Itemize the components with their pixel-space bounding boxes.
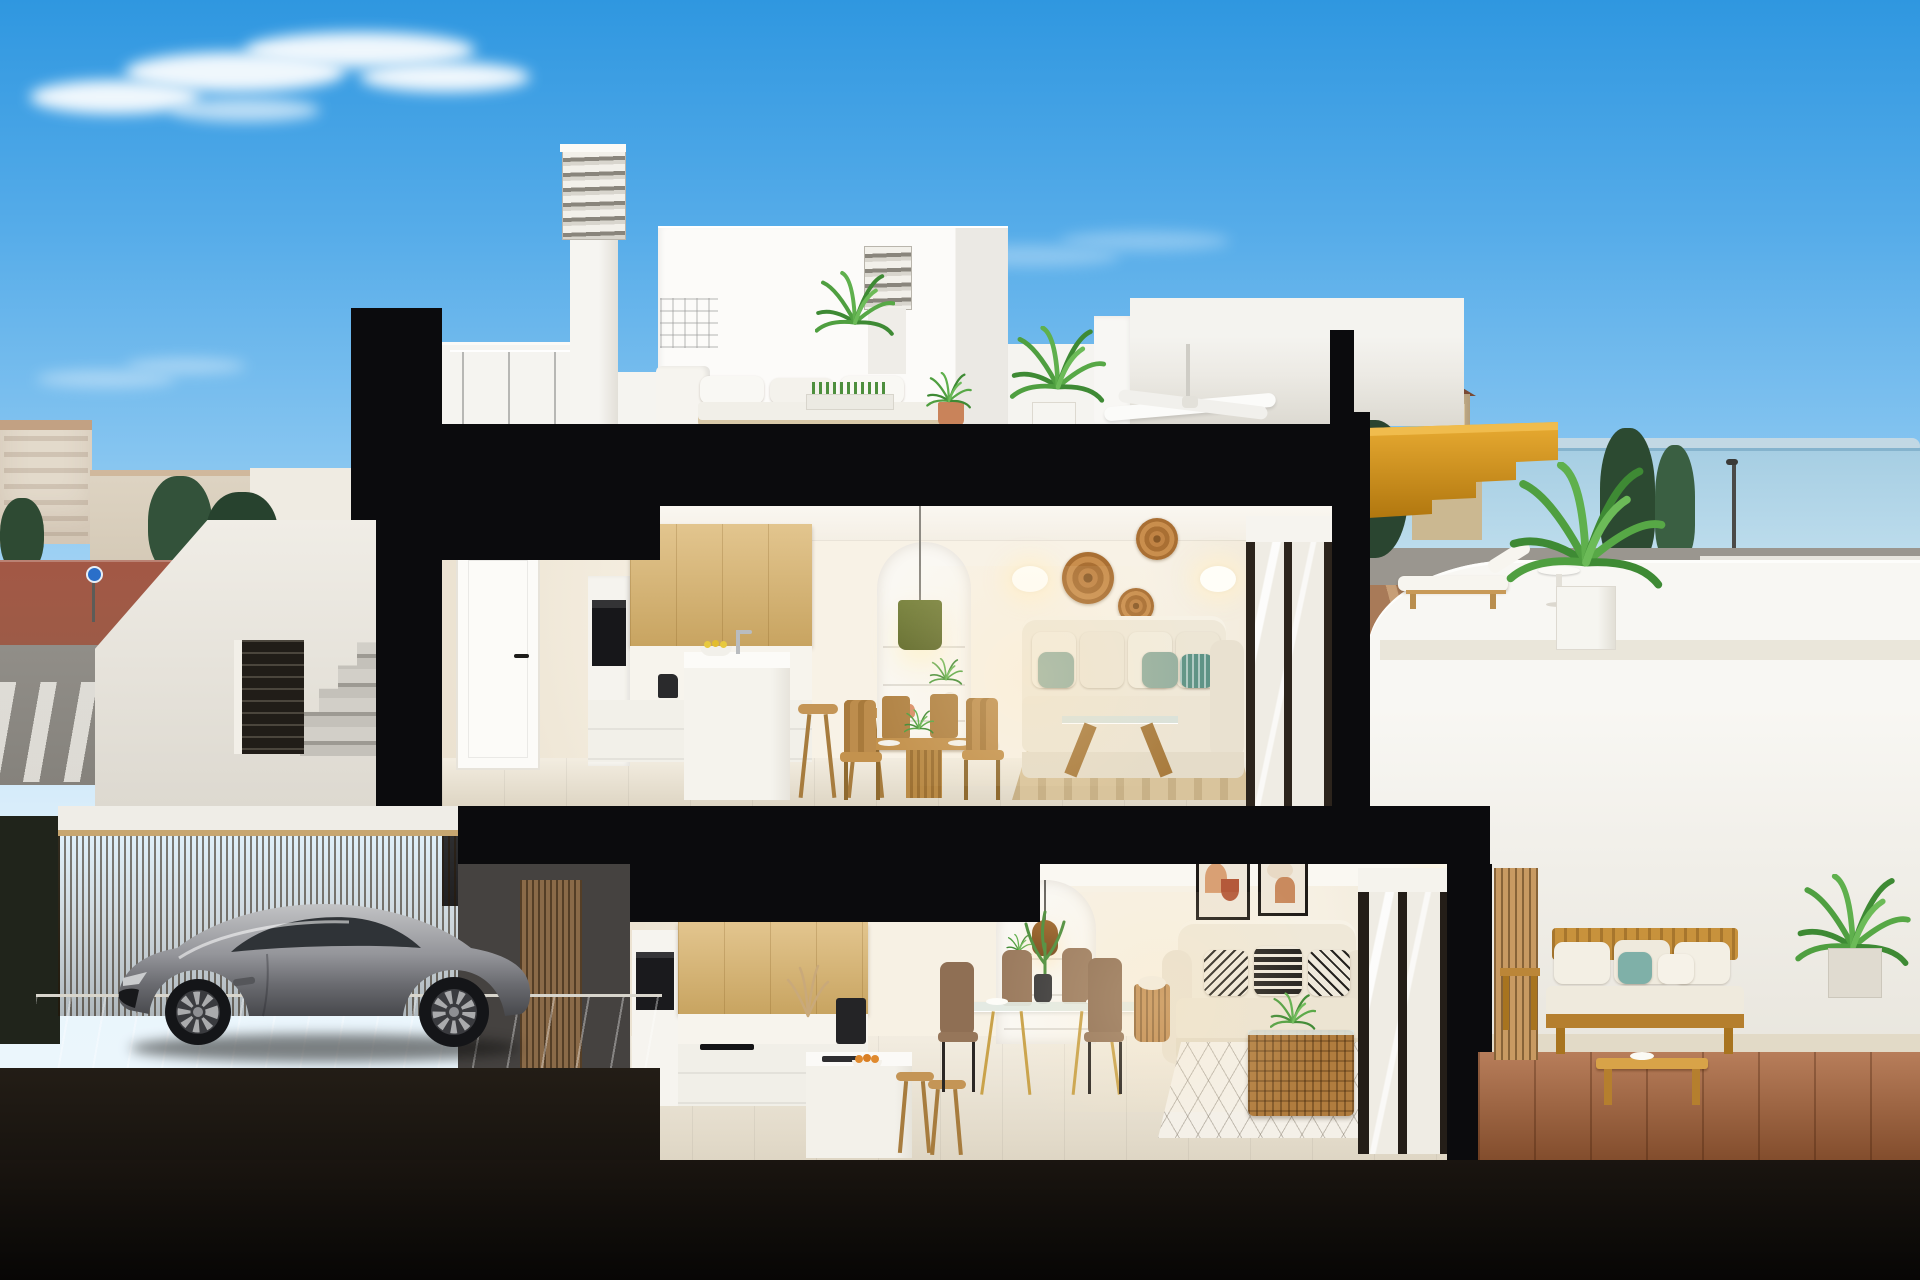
door-handle (514, 654, 529, 658)
roof-pot-plant (918, 372, 980, 410)
rattan-basket (1134, 984, 1170, 1042)
island (684, 652, 790, 800)
roof-palm (1002, 326, 1114, 406)
terrace-deck-line (1380, 640, 1920, 660)
chimney-tall-cap (560, 144, 626, 152)
roof-glass-post (554, 352, 556, 424)
hob (700, 1044, 754, 1050)
roof-railing-grid (660, 298, 718, 348)
outdoor-coffee-table (1596, 1058, 1708, 1108)
sliding-door-upper (1246, 516, 1332, 806)
lemon-bowl (700, 646, 732, 656)
pendant-cord (919, 506, 921, 602)
kettle (658, 674, 678, 698)
island-faucet-spout (736, 630, 752, 634)
bar-stool (798, 704, 838, 800)
wall-sconce (1200, 566, 1236, 592)
outdoor-side-table (1500, 968, 1540, 1032)
roundabout-sign (86, 566, 103, 583)
apartment-roof (0, 420, 92, 430)
dried-grass-vase (786, 958, 830, 1018)
dining-chair-back (930, 694, 958, 738)
roof-glass-post (508, 352, 510, 424)
dining-centerpiece (904, 702, 934, 742)
rattan-disc-medium (1136, 518, 1178, 560)
coffee-machine (836, 998, 866, 1044)
rattan-coffee-table (1248, 1030, 1354, 1116)
cut-kitchen-block (630, 864, 1040, 922)
roof-glass-rail (450, 350, 578, 352)
niche-plant (929, 658, 963, 686)
fence-rail (58, 830, 458, 836)
cloud-large (30, 20, 550, 170)
louvered-gate (242, 640, 304, 754)
cut-roof-slab (351, 424, 1332, 506)
dining-chair-tan (1086, 958, 1122, 1096)
fence-top-strip (58, 806, 458, 832)
terrace-palm (1506, 462, 1666, 594)
fan-rod (1186, 344, 1190, 398)
sports-car (108, 862, 540, 1062)
dining-chair-tan (940, 962, 976, 1094)
table-plant (1270, 990, 1316, 1034)
ground-band (0, 1160, 1920, 1280)
chimney-tall-louver (562, 150, 626, 240)
oven (592, 600, 626, 666)
chimney-tall-stem (570, 232, 618, 426)
hallway-door (456, 548, 540, 770)
centerpiece-vase (1034, 974, 1052, 1004)
architectural-cutaway-render (0, 0, 1920, 1280)
rattan-disc-large (1062, 552, 1114, 604)
wall-sconce (1012, 566, 1048, 592)
lamp-head (1726, 459, 1738, 465)
cut-mid-slab (442, 806, 1490, 864)
cut-right-column-upper (1332, 412, 1370, 806)
dining-chair (962, 698, 1000, 802)
corner-plant-pot (1828, 948, 1882, 998)
gate-frame (234, 640, 242, 754)
roof-planter-grass (812, 382, 886, 394)
sliding-door-lower (1358, 868, 1450, 1154)
roof-planter-tray (806, 394, 894, 410)
ceiling-fan (1104, 392, 1276, 420)
outdoor-sofa (1546, 928, 1744, 1054)
pendant-lamp-green (898, 600, 942, 650)
cloud-faint-low (36, 356, 256, 406)
dining-chair (844, 700, 882, 802)
coffee-table-glass (1062, 716, 1178, 786)
sign-pole (92, 578, 95, 622)
roof-plant-leafy (815, 262, 895, 348)
roof-glass-post (462, 352, 464, 424)
terrace-palm-planter (1556, 586, 1616, 650)
